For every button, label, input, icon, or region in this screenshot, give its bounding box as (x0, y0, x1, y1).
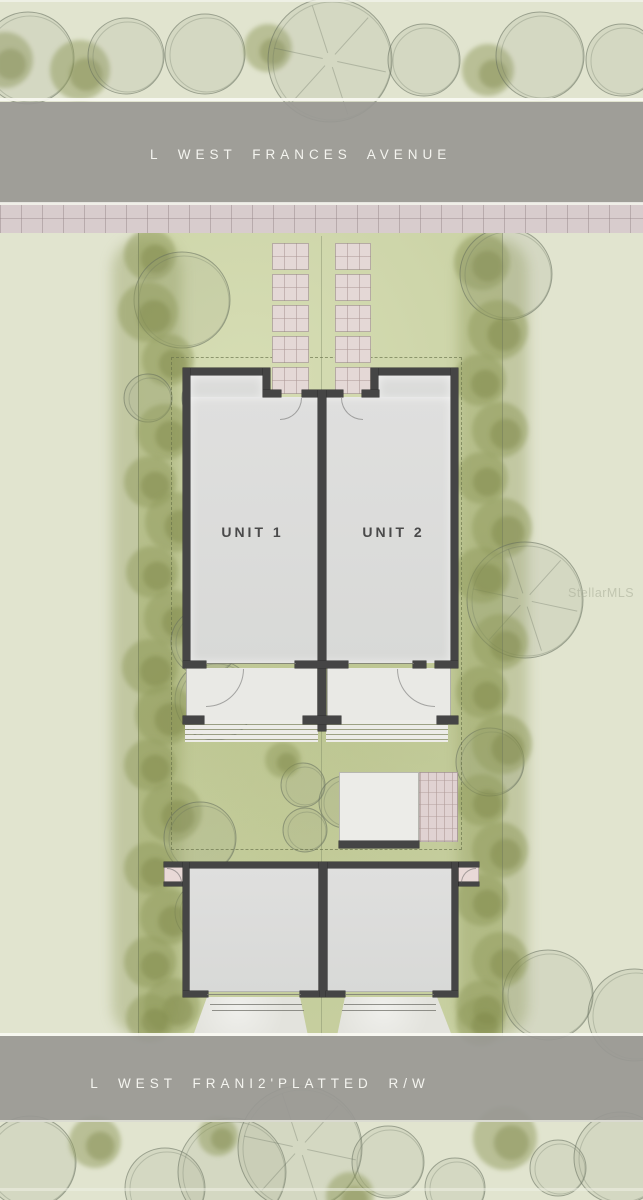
bush-shade (141, 755, 170, 784)
wall-segment (413, 661, 426, 668)
wall-segment (451, 368, 458, 668)
site-plan-canvas: UNIT 1 UNIT 2 L WEST FRANCES AVENUE L WE… (0, 0, 643, 1200)
bush-shade (473, 682, 502, 711)
edge-line (345, 994, 434, 995)
road-bottom-edge (0, 1120, 643, 1122)
patio-slab (339, 772, 419, 842)
bush-shade (473, 890, 502, 919)
wall-segment (300, 991, 319, 997)
street-name-top: L WEST FRANCES AVENUE (150, 147, 430, 162)
bush-shade (494, 1125, 529, 1160)
bush-shade (142, 1008, 168, 1034)
paver-pad (335, 274, 371, 301)
curb-line-top (0, 98, 643, 101)
bush-shade (471, 370, 500, 399)
tree-canopy (88, 18, 164, 94)
sidewalk (0, 205, 643, 233)
tree-canopy (586, 24, 643, 96)
garage2-interior (327, 867, 452, 992)
bush-shade (490, 631, 521, 662)
wall-segment (183, 716, 204, 724)
unit2-label: UNIT 2 (341, 523, 446, 541)
paver-pad (272, 305, 309, 332)
wall-segment (183, 862, 189, 997)
edge-line (212, 1010, 304, 1011)
wall-segment (263, 390, 281, 397)
bush-shade (143, 562, 172, 591)
wall-segment (183, 991, 208, 997)
wall-segment (183, 368, 190, 668)
lot-boundary-line-right (502, 233, 503, 1036)
tree-canopy (425, 1158, 485, 1200)
wall-segment (452, 862, 458, 997)
bush-shade (86, 1132, 115, 1161)
paver-pad (272, 243, 309, 270)
edge-line (348, 663, 414, 664)
street-name-bottom: L WEST FRANI2'PLATTED R/W (80, 1076, 440, 1091)
rear-steps-unit2 (326, 720, 448, 742)
bush-shade (490, 839, 521, 870)
wall-segment (435, 661, 458, 668)
curb-line-sidewalk (0, 202, 643, 205)
unit2-entry-interior (378, 375, 451, 399)
bush-shade (211, 1128, 233, 1150)
unit1-entry-interior (190, 375, 263, 399)
wall-segment (326, 991, 345, 997)
wall-segment (371, 368, 458, 375)
wall-segment (319, 862, 327, 997)
bush-shade (141, 952, 170, 981)
wall-segment (459, 862, 479, 867)
bush-shade (140, 656, 171, 687)
wall-segment (295, 661, 348, 668)
rear-steps-unit1 (185, 720, 318, 742)
paver-pad (272, 336, 309, 363)
driveway-unit1 (190, 997, 310, 1036)
edge-line (207, 994, 301, 995)
tree-canopy (574, 1112, 643, 1200)
paver-pad (335, 243, 371, 270)
bush-shade (492, 732, 525, 765)
wall-segment (183, 368, 270, 375)
driveway-unit2 (335, 997, 455, 1036)
bush-shade (490, 949, 521, 980)
wall-segment (183, 661, 206, 668)
bush-shade (473, 790, 502, 819)
edge-line (342, 1010, 436, 1011)
wall-segment (339, 841, 419, 848)
wall-segment (303, 716, 341, 724)
patio-pavers (419, 772, 458, 842)
unit1-label: UNIT 1 (200, 523, 305, 541)
edge-line (206, 663, 296, 664)
edge-line (344, 1004, 436, 1005)
bush-shade (473, 468, 502, 497)
wall-segment (362, 390, 379, 397)
garage1-interior (189, 867, 319, 992)
bush-shade (488, 318, 521, 351)
wall-segment (164, 862, 184, 867)
bush-shade (490, 419, 521, 450)
paver-pad (335, 336, 371, 363)
bush-shade (138, 300, 171, 333)
lawn-edge-line (0, 1188, 643, 1191)
watermark: StellarMLS (568, 586, 643, 600)
curb-line-bottom-road (0, 1033, 643, 1036)
paver-pad (272, 274, 309, 301)
lot-boundary-line-left (138, 233, 139, 1036)
paver-pad (335, 305, 371, 332)
wall-segment (433, 991, 458, 997)
wall-segment (318, 390, 326, 731)
edge-line (210, 1004, 302, 1005)
edge-line (0, 0, 643, 2)
wall-segment (437, 716, 458, 724)
bush-shade (472, 564, 503, 595)
tree-canopy (388, 24, 460, 96)
